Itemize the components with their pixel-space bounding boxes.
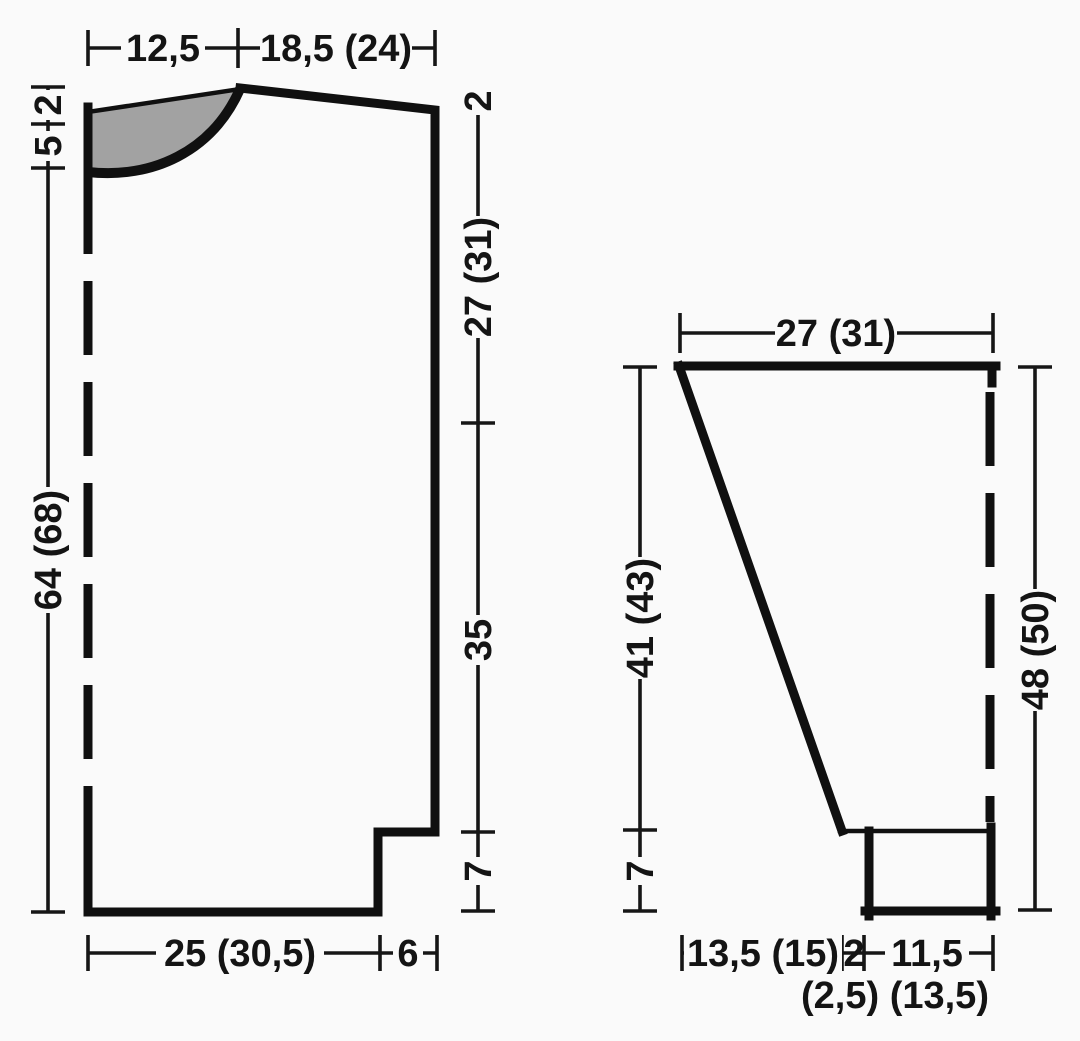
body-neck-width-label: 12,5 — [126, 28, 200, 70]
body-bottom-extension-label: 6 — [397, 933, 418, 975]
back-neck-depth-label: 2 — [28, 94, 70, 115]
body-left-dimension: 2 5 64 (68) — [28, 87, 70, 912]
body-bottom-dimension: 25 (30,5) 6 — [88, 933, 437, 975]
armhole-depth-label: 27 (31) — [458, 217, 500, 337]
body-length-label: 64 (68) — [28, 490, 70, 610]
sleeve-piece: 27 (31) 41 (43) 7 48 (50) — [620, 313, 1057, 1017]
sleeve-slant-width-label: 13,5 (15) — [687, 933, 839, 975]
sleeve-rib-height-label: 7 — [620, 860, 662, 881]
shoulder-drop-label: 2 — [458, 90, 500, 111]
sleeve-total-length-label: 48 (50) — [1015, 590, 1057, 710]
body-outline — [88, 88, 435, 912]
sleeve-top-dimension: 27 (31) — [680, 313, 993, 355]
body-bottom-width-label: 25 (30,5) — [164, 933, 316, 975]
sleeve-top-width-label: 27 (31) — [776, 313, 896, 355]
sleeve-cuff-width-label: 11,5 — [891, 933, 963, 975]
body-top-dimension: 12,5 18,5 (24) — [88, 28, 435, 70]
body-piece: 12,5 18,5 (24) 2 5 64 (68) — [28, 28, 500, 975]
pattern-schematic: 12,5 18,5 (24) 2 5 64 (68) — [0, 0, 1080, 1041]
body-shoulder-width-label: 18,5 (24) — [260, 28, 412, 70]
sleeve-second-sizes-label: (2,5) (13,5) — [801, 975, 989, 1017]
side-length-label: 35 — [458, 619, 500, 661]
front-neck-depth-label: 5 — [28, 135, 70, 156]
body-rib-height-label: 7 — [458, 860, 500, 881]
sleeve-slant-seam — [679, 366, 842, 831]
sleeve-upper-length-label: 41 (43) — [620, 558, 662, 678]
sleeve-right-dimension: 48 (50) — [1015, 367, 1057, 910]
sleeve-left-dimension: 41 (43) 7 — [620, 367, 662, 911]
body-right-dimension: 2 27 (31) 35 7 — [458, 87, 500, 911]
sleeve-step-width-label: 2 — [843, 933, 864, 975]
sleeve-bottom-dimension: 13,5 (15) 2 11,5 (2,5) (13,5) — [682, 933, 993, 1017]
